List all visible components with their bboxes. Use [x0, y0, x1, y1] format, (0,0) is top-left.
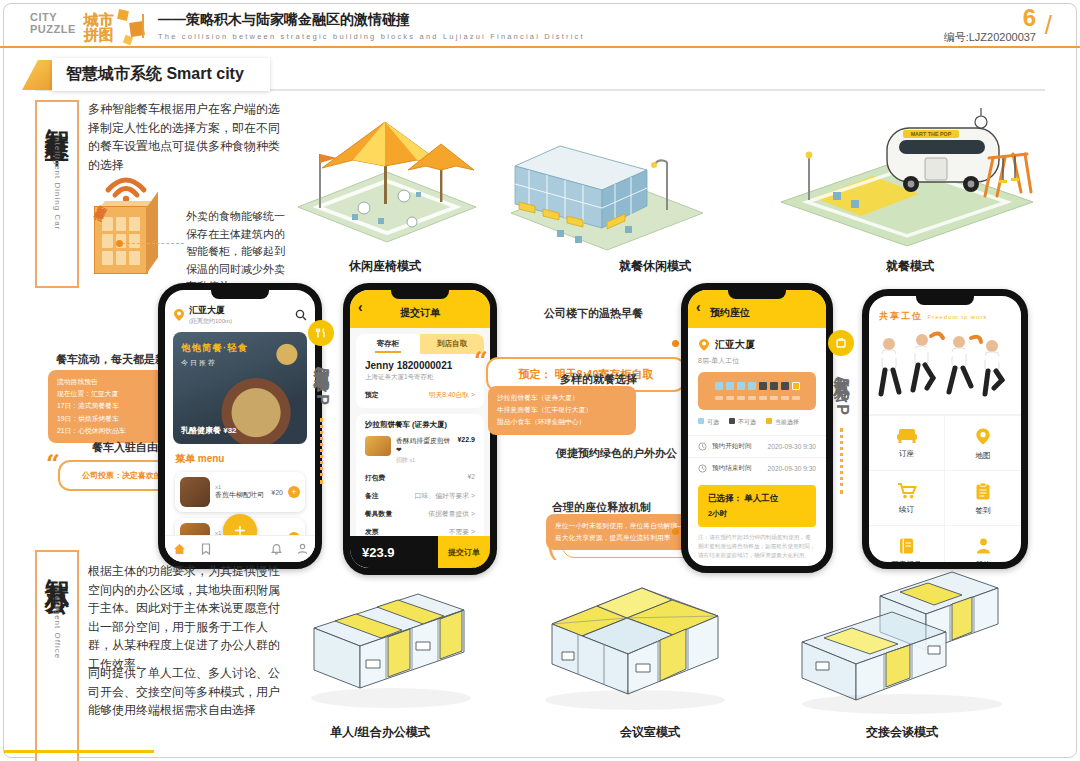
note-row[interactable]: 备注口味、偏好等要求 >: [356, 487, 484, 505]
section-title: 智慧城市系统 Smart city: [52, 58, 270, 91]
office-mode-label-3: 交接会谈模式: [812, 724, 992, 741]
phone-seat-booking: ‹ 预约座位 汇亚大厦 8层-单人工位 可选 不可选 当前选择 预约开始时间: [681, 283, 833, 573]
mode-label-2: 就餐休闲模式: [570, 258, 740, 275]
design-board: CITY PUZZLE 城市 拼图 ——策略积木与陆家嘴金融区的激情碰撞 The…: [0, 0, 1080, 761]
truck-options-box: 沙拉煎饼餐车（证券大厦） 牛排意面餐车（汇丰银行大厦） 甜品小食车（环球金融中心…: [488, 386, 636, 435]
release-rule: 最大化共享资源，提高座位流转利用率: [555, 532, 701, 544]
puzzle-piece-icon: [123, 35, 133, 45]
clipboard-icon: [975, 482, 991, 501]
bottom-nav: [165, 535, 315, 562]
feature-grid: 订座 地图 续订 签到 预定记录 我的: [869, 415, 1021, 569]
current-building: 汇亚大厦: [189, 304, 232, 317]
phone-notch: [728, 290, 786, 299]
item-tag: 招牌: [396, 457, 408, 463]
header-divider: [142, 14, 144, 38]
office-paragraph-2: 同时提供了单人工位、多人讨论、公司开会、交接空间等多种模式，用户能够使用终端根据…: [88, 664, 284, 720]
phone-notch: [211, 290, 269, 299]
person-icon: [975, 537, 992, 555]
location-pin-icon: [698, 338, 710, 352]
start-time-row[interactable]: 预约开始时间 2020-09-30 9:30: [688, 435, 826, 457]
illustration-handover-room: [782, 566, 1032, 724]
note-seat-release: 合理的座位释放机制: [552, 500, 651, 515]
building-name: 汇亚大厦: [715, 338, 755, 352]
mode-label-3: 就餐模式: [825, 258, 995, 275]
route-line: 17日：港式简餐餐车: [57, 400, 173, 412]
sidebar-office-label-cn: 智慧办公: [43, 560, 71, 576]
locker-address: 上海证券大厦1号寄存柜: [356, 371, 484, 386]
phone-shared-workstation: 共享工位 Freedom to work: [862, 289, 1028, 569]
location-pin-icon: [173, 308, 185, 322]
app-label-office-text: 智慧办公APP: [831, 364, 852, 418]
mode-label-1: 休闲座椅模式: [300, 258, 470, 275]
serial-number: 编号:LJZ20200037: [944, 30, 1036, 45]
logo-cn: 城市 拼图: [84, 12, 140, 42]
office-paragraph-1: 根据主体的功能要求，为其提供慢性空间内的办公区域，其地块面积附属于主体。因此对于…: [88, 562, 284, 674]
page-number: 6: [944, 6, 1036, 30]
home-icon[interactable]: [173, 543, 186, 555]
order-item: 香酥鸡排蛋皮煎饼❤ 招牌 x1 ¥22.9: [356, 432, 484, 469]
menu-header: 菜单 menu: [175, 452, 305, 466]
fee-row: 打包费¥2: [356, 469, 484, 487]
banner-title: 饱饱简餐·轻食: [181, 342, 248, 355]
route-line: 21日：心悦休闲饮品车: [57, 425, 173, 437]
sidebar-dining: 智慧餐车 Intelligent Dining Car: [35, 100, 79, 288]
truck-option: 牛排意面餐车（汇丰银行大厦）: [497, 404, 627, 416]
seat-legend: 可选 不可选 当前选择: [688, 410, 826, 435]
office-app-icon: [828, 330, 854, 356]
booking-header-title: 预约座位: [710, 306, 750, 320]
workstation-banner: 共享工位 Freedom to work: [869, 296, 1021, 415]
header-titles: ——策略积木与陆家嘴金融区的激情碰撞 The collision between…: [158, 11, 585, 41]
app-label-office: 智慧办公APP: [828, 330, 854, 494]
search-icon[interactable]: [295, 309, 307, 321]
dotted-connector: [320, 418, 323, 484]
map-pin-icon: [975, 427, 991, 446]
dining-app-icon: [308, 320, 334, 346]
building-row: 汇亚大厦: [688, 328, 826, 354]
record-book-icon: [898, 537, 915, 555]
board-title-cn: ——策略积木与陆家嘴金融区的激情碰撞: [158, 11, 585, 29]
seat-icon: [896, 427, 918, 444]
banner-subtitle: 今日推荐: [181, 358, 217, 368]
item-price: ¥22.9: [457, 436, 475, 443]
leader-dot: [672, 528, 679, 535]
add-to-cart-button[interactable]: +: [288, 486, 300, 498]
board-title-en: The collision between strategic building…: [158, 32, 585, 41]
grid-item-profile[interactable]: 我的: [945, 525, 1021, 569]
grid-item-booking-history[interactable]: 预定记录: [869, 525, 945, 569]
wifi-icon: [102, 168, 150, 202]
dining-intro-paragraph: 多种智能餐车根据用户在客户端的选择制定人性化的选择方案，即在不同的餐车设置地点可…: [88, 100, 284, 174]
illustration-dining-leisure: [505, 110, 710, 260]
note-warm-breakfast: 公司楼下的温热早餐: [544, 306, 643, 321]
profile-icon[interactable]: [297, 543, 308, 555]
leader-dot: [672, 340, 679, 347]
item-qty: x1: [409, 457, 415, 463]
truck-option: 沙拉煎饼餐车（证券大厦）: [497, 392, 627, 404]
bookmark-icon[interactable]: [201, 543, 211, 555]
dish-thumbnail: [180, 477, 210, 507]
phone-notch: [916, 296, 974, 305]
reserve-row[interactable]: 预定 明天8:40自取 >: [356, 386, 484, 404]
route-line: 19日：烘焙乐烤餐车: [57, 413, 173, 425]
leader-line: [122, 243, 184, 244]
truck-option: 甜品小食车（环球金融中心）: [497, 416, 627, 428]
phone-submit-order: ‹ 提交订单 寄存柜 到店自取 Jenny 1820000021 上海证券大厦1…: [343, 283, 497, 575]
bell-icon[interactable]: [271, 543, 282, 555]
app-label-dining-text: 智慧用餐APP: [311, 354, 332, 408]
shop-name: 沙拉煎饼餐车 (证券大厦): [356, 414, 484, 432]
zone-label: 8层-单人工位: [688, 354, 826, 372]
selected-seat-box: 已选择： 单人工位 2小时: [698, 485, 816, 527]
pickup-tabs: 寄存柜 到店自取: [356, 334, 484, 354]
dish-name: 香煎牛柳配吐司: [215, 490, 264, 500]
sidebar-dining-label-en: Intelligent Dining Car: [53, 134, 62, 230]
back-button[interactable]: ‹: [696, 300, 701, 314]
clock-icon: [698, 464, 707, 473]
office-mode-label-1: 单人/组合办公模式: [290, 724, 470, 741]
end-time-row[interactable]: 预约结束时间 2020-09-30 9:30: [688, 457, 826, 479]
bottom-accent-line: [4, 750, 154, 753]
submit-order-button[interactable]: 提交订单: [438, 536, 490, 568]
office-mode-label-2: 会议室模式: [565, 724, 735, 741]
illustration-meeting-room: [520, 566, 750, 724]
menu-item-card[interactable]: x1 香煎牛柳配吐司 ¥20 +: [175, 472, 305, 512]
app-label-dining: 智慧用餐APP: [308, 320, 334, 484]
cutlery-row[interactable]: 餐具数量依据餐量提供 >: [356, 505, 484, 523]
phone-dining-home: 汇亚大厦 (距离您约100m) 饱饱简餐·轻食 今日推荐 乳酪健康餐 ¥32 菜…: [158, 283, 322, 569]
banner-item: 乳酪健康餐 ¥32: [181, 425, 237, 436]
order-total: ¥23.9: [350, 545, 395, 560]
grid-item-checkin[interactable]: 签到: [945, 470, 1021, 525]
page-meta: 6 编号:LJZ20200037: [944, 6, 1036, 45]
checkout-bar: ¥23.9 提交订单: [350, 536, 490, 568]
reserve-value: 明天8:40自取 >: [429, 390, 475, 400]
cabinet-side-face: [146, 191, 158, 274]
grid-item-renew[interactable]: 续订: [869, 470, 945, 525]
sidebar-office-label-en: Intelligent Office: [53, 584, 62, 659]
puzzle-piece-icon: [117, 9, 129, 21]
dish-price: ¥20: [271, 489, 283, 496]
seat-map[interactable]: [698, 372, 816, 410]
header-rule: [0, 46, 1080, 48]
grid-item-map[interactable]: 地图: [945, 415, 1021, 470]
reserve-label: 预定: [365, 390, 379, 400]
logo-en: CITY PUZZLE: [30, 12, 76, 42]
phone-notch: [391, 290, 449, 299]
dancing-people-illustration: [873, 328, 1005, 410]
dotted-connector: [840, 428, 843, 494]
back-button[interactable]: ‹: [358, 300, 363, 314]
selected-title: 已选择： 单人工位: [708, 493, 806, 505]
brand-logo: CITY PUZZLE 城市 拼图: [30, 12, 140, 42]
logo-puzzle: PUZZLE: [30, 24, 76, 36]
sidebar-dining-label-cn: 智慧餐车: [43, 110, 71, 126]
slash-mark: /: [1045, 10, 1052, 41]
route-line: 现在位置：汇亚大厦: [57, 388, 173, 400]
tab-locker[interactable]: 寄存柜: [356, 334, 420, 354]
distance-hint: (距离您约100m): [189, 317, 232, 326]
route-line: 流动路线预告: [57, 376, 173, 388]
clock-icon: [698, 442, 707, 451]
sidebar-office: 智慧办公 Intelligent Office: [35, 550, 79, 761]
illustration-leisure-seats: [292, 96, 482, 258]
release-rule: 座位一小时未签到使用，座位将自动解绑——: [555, 520, 701, 532]
illustration-single-office: [296, 576, 491, 724]
item-thumbnail: [365, 436, 391, 456]
illustration-dining-truck: MART THE POP: [775, 92, 1040, 258]
selected-duration: 2小时: [708, 509, 806, 519]
customer-card: Jenny 1820000021 上海证券大厦1号寄存柜 预定 明天8:40自取…: [356, 354, 484, 408]
note-outdoor-office: 便捷预约绿色的户外办公: [556, 446, 677, 461]
customer-name: Jenny 1820000021: [356, 354, 484, 371]
banner-title: 共享工位: [879, 311, 923, 321]
truck-sign: MART THE POP: [911, 131, 952, 137]
grid-item-book-seat[interactable]: 订座: [869, 415, 945, 470]
promo-banner[interactable]: 饱饱简餐·轻食 今日推荐 乳酪健康餐 ¥32: [173, 332, 307, 444]
booking-fine-print: 注：请在预约开始15分钟内到场签到使用，逾期未签到座位将自动释放；如需延长使用时…: [698, 533, 816, 560]
banner-subtitle-en: Freedom to work: [928, 314, 988, 320]
note-dining-variety: 多样的就餐选择: [560, 372, 637, 387]
item-name: 香酥鸡排蛋皮煎饼❤: [396, 436, 452, 454]
logo-city: CITY: [30, 12, 76, 24]
cart-icon: [897, 482, 917, 500]
order-header-title: 提交订单: [400, 306, 440, 320]
